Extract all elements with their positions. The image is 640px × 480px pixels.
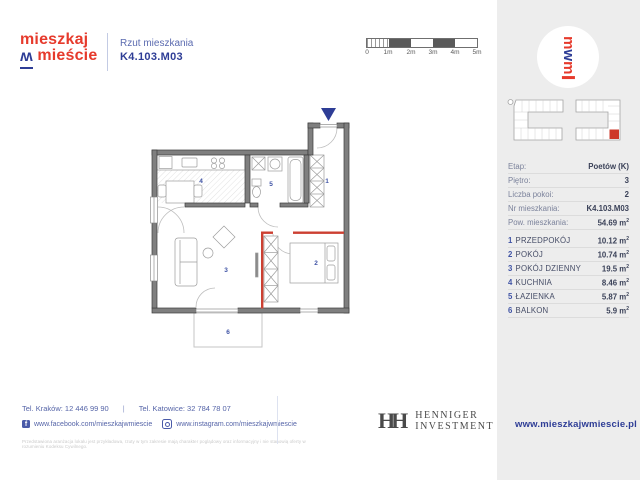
monogram-badge: mwm bbox=[537, 26, 599, 88]
document-type-label: Rzut mieszkania bbox=[120, 38, 193, 49]
list-item: 2POKÓJ 10.74 m2 bbox=[508, 248, 629, 262]
table-row: Pow. mieszkania: 54.69 m2 bbox=[508, 216, 629, 230]
side-table bbox=[203, 248, 213, 258]
social-links: f www.facebook.com/mieszkajwmiescie www.… bbox=[22, 419, 297, 429]
room-list: 1PRZEDPOKÓJ 10.12 m2 2POKÓJ 10.74 m2 3PO… bbox=[508, 234, 629, 318]
developer-name-line1: HENNIGER bbox=[415, 410, 478, 421]
side-panel: mwm Etap: Poetów (K) Piętro: 3 bbox=[497, 0, 640, 480]
room-label-3: 3 bbox=[224, 267, 228, 274]
facebook-icon: f bbox=[22, 420, 30, 428]
table-row: Liczba pokoi: 2 bbox=[508, 188, 629, 202]
phone-contacts: Tel. Kraków: 12 446 99 90|Tel. Katowice:… bbox=[22, 404, 231, 413]
pillow bbox=[327, 265, 335, 280]
instagram-link[interactable]: www.instagram.com/mieszkajwmiescie bbox=[176, 421, 297, 428]
kitchen-table bbox=[166, 181, 194, 203]
table-row: Nr mieszkania: K4.103.M03 bbox=[508, 202, 629, 216]
table-row: Piętro: 3 bbox=[508, 174, 629, 188]
list-item: 6BALKON 5.9 m2 bbox=[508, 304, 629, 318]
header-divider bbox=[107, 33, 108, 71]
hall-wardrobe bbox=[310, 155, 324, 207]
table-row: Etap: Poetów (K) bbox=[508, 160, 629, 174]
list-item: 3POKÓJ DZIENNY 19.5 m2 bbox=[508, 262, 629, 276]
instagram-icon bbox=[162, 419, 172, 429]
developer-monogram: HH bbox=[378, 408, 408, 434]
list-item: 5ŁAZIENKA 5.87 m2 bbox=[508, 290, 629, 304]
living-room-furniture bbox=[175, 226, 258, 286]
brand-logo: mieszkaj w mieście bbox=[20, 32, 97, 69]
brand-word-1: mieszkaj bbox=[20, 32, 97, 48]
apartment-details-table: Etap: Poetów (K) Piętro: 3 Liczba pokoi:… bbox=[508, 160, 629, 230]
toilet-cistern bbox=[252, 179, 261, 186]
developer-name-line2: INVESTMENT bbox=[415, 421, 494, 432]
monogram-underline bbox=[561, 76, 574, 79]
floor-plan: 1 2 3 4 5 6 bbox=[128, 95, 368, 370]
entrance-door bbox=[320, 125, 337, 128]
room-label-1: 1 bbox=[325, 178, 329, 185]
developer-logo: HH HENNIGER INVESTMENT bbox=[378, 408, 494, 434]
apartment-code: K4.103.M03 bbox=[120, 51, 183, 63]
brand-line-2: w mieście bbox=[20, 48, 97, 68]
scale-bar: 0 1m 2m 3m 4m 5m bbox=[366, 38, 478, 58]
scale-bar-segments bbox=[366, 38, 478, 48]
mwm-monogram: mwm bbox=[560, 36, 575, 79]
phone-katowice: Tel. Katowice: 32 784 78 07 bbox=[139, 404, 231, 413]
bedroom-wardrobe bbox=[264, 236, 278, 302]
brand-word-3: mieście bbox=[37, 47, 97, 64]
bathroom-fixtures bbox=[252, 157, 303, 203]
website-link[interactable]: www.mieszkajwmiescie.pl bbox=[515, 419, 637, 430]
footer-divider bbox=[277, 396, 278, 444]
entrance-arrow-icon bbox=[321, 108, 336, 121]
brand-word-w: w bbox=[20, 48, 33, 64]
room-label-4: 4 bbox=[199, 178, 203, 185]
toilet bbox=[253, 187, 261, 198]
room-label-2: 2 bbox=[314, 260, 318, 267]
list-item: 4KUCHNIA 8.46 m2 bbox=[508, 276, 629, 290]
scale-bar-labels: 0 1m 2m 3m 4m 5m bbox=[366, 49, 478, 58]
room-label-6: 6 bbox=[226, 329, 230, 336]
facebook-link[interactable]: www.facebook.com/mieszkajwmiescie bbox=[34, 421, 152, 428]
coffee-table bbox=[213, 226, 235, 248]
room-label-5: 5 bbox=[269, 181, 273, 188]
list-item: 1PRZEDPOKÓJ 10.12 m2 bbox=[508, 234, 629, 248]
phone-krakow: Tel. Kraków: 12 446 99 90 bbox=[22, 404, 109, 413]
site-plan-map bbox=[506, 92, 630, 150]
pillow bbox=[327, 246, 335, 261]
highlighted-unit bbox=[610, 130, 620, 140]
legal-disclaimer: Przedstawiona aranżacja lokalu jest przy… bbox=[22, 439, 327, 449]
bathroom-sink bbox=[270, 159, 280, 169]
brand-underline bbox=[20, 67, 33, 69]
tv bbox=[256, 253, 259, 277]
